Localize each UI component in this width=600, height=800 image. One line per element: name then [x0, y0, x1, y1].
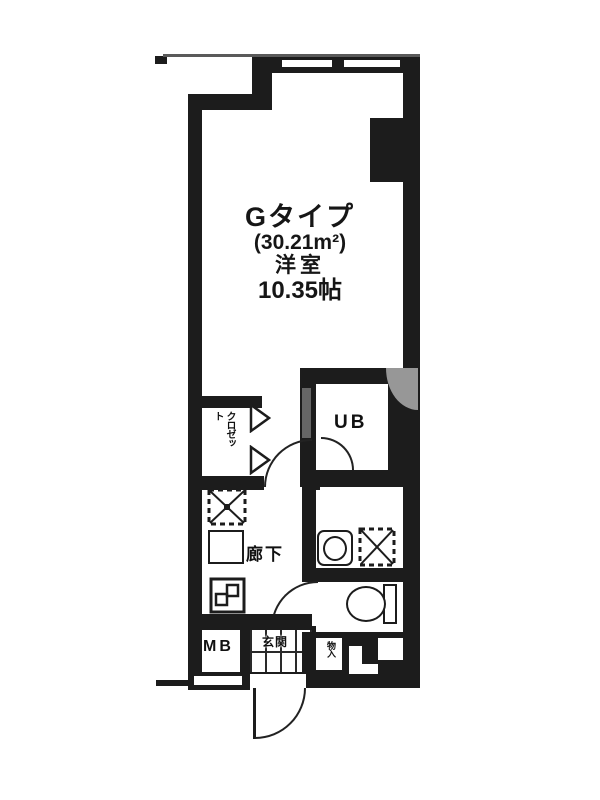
hallway-label: 廊下 — [246, 540, 284, 565]
unit-area-label: (30.21m²) — [210, 232, 390, 255]
floor-plan: UB クロゼット 廊下 MB 玄関 物入 — [0, 0, 600, 800]
pipe-niche-horizontal — [349, 664, 378, 674]
right-niche — [378, 638, 403, 660]
folding-door-icon — [249, 403, 271, 433]
entrance-door-arc — [255, 688, 306, 739]
structural-pillar — [370, 118, 403, 182]
washroom-toilet-divider — [302, 568, 403, 582]
bottom-left-dash — [156, 680, 192, 686]
room-name-label: 洋室 — [210, 255, 390, 278]
top-left-tick — [155, 56, 167, 64]
stove-icon — [209, 577, 246, 614]
wall-mb-entrance — [240, 630, 250, 674]
main-room-title: Gタイプ (30.21m²) 洋室 10.35帖 — [210, 203, 390, 303]
window-slot-left — [282, 60, 332, 67]
toilet-bowl-icon — [346, 586, 386, 622]
meter-box-label: MB — [203, 638, 234, 656]
closet-label: クロゼット — [207, 411, 235, 451]
entrance-label: 玄関 — [262, 633, 288, 650]
unit-type-label: Gタイプ — [210, 203, 390, 232]
sink-icon — [208, 530, 244, 564]
washroom-left-wall — [302, 470, 316, 582]
storage-label: 物入 — [321, 641, 337, 669]
wall-artifact — [302, 388, 311, 438]
room-size-label: 10.35帖 — [210, 278, 390, 304]
washing-machine-space-icon — [357, 526, 397, 568]
mb-vent-slot — [194, 676, 242, 685]
unit-bath-label: UB — [334, 412, 367, 434]
wall-left — [188, 94, 202, 688]
washbasin-bowl-icon — [323, 536, 347, 561]
wall-above-entrance — [188, 614, 312, 630]
window-slot-right — [344, 60, 400, 67]
refrigerator-space-icon — [206, 487, 248, 527]
